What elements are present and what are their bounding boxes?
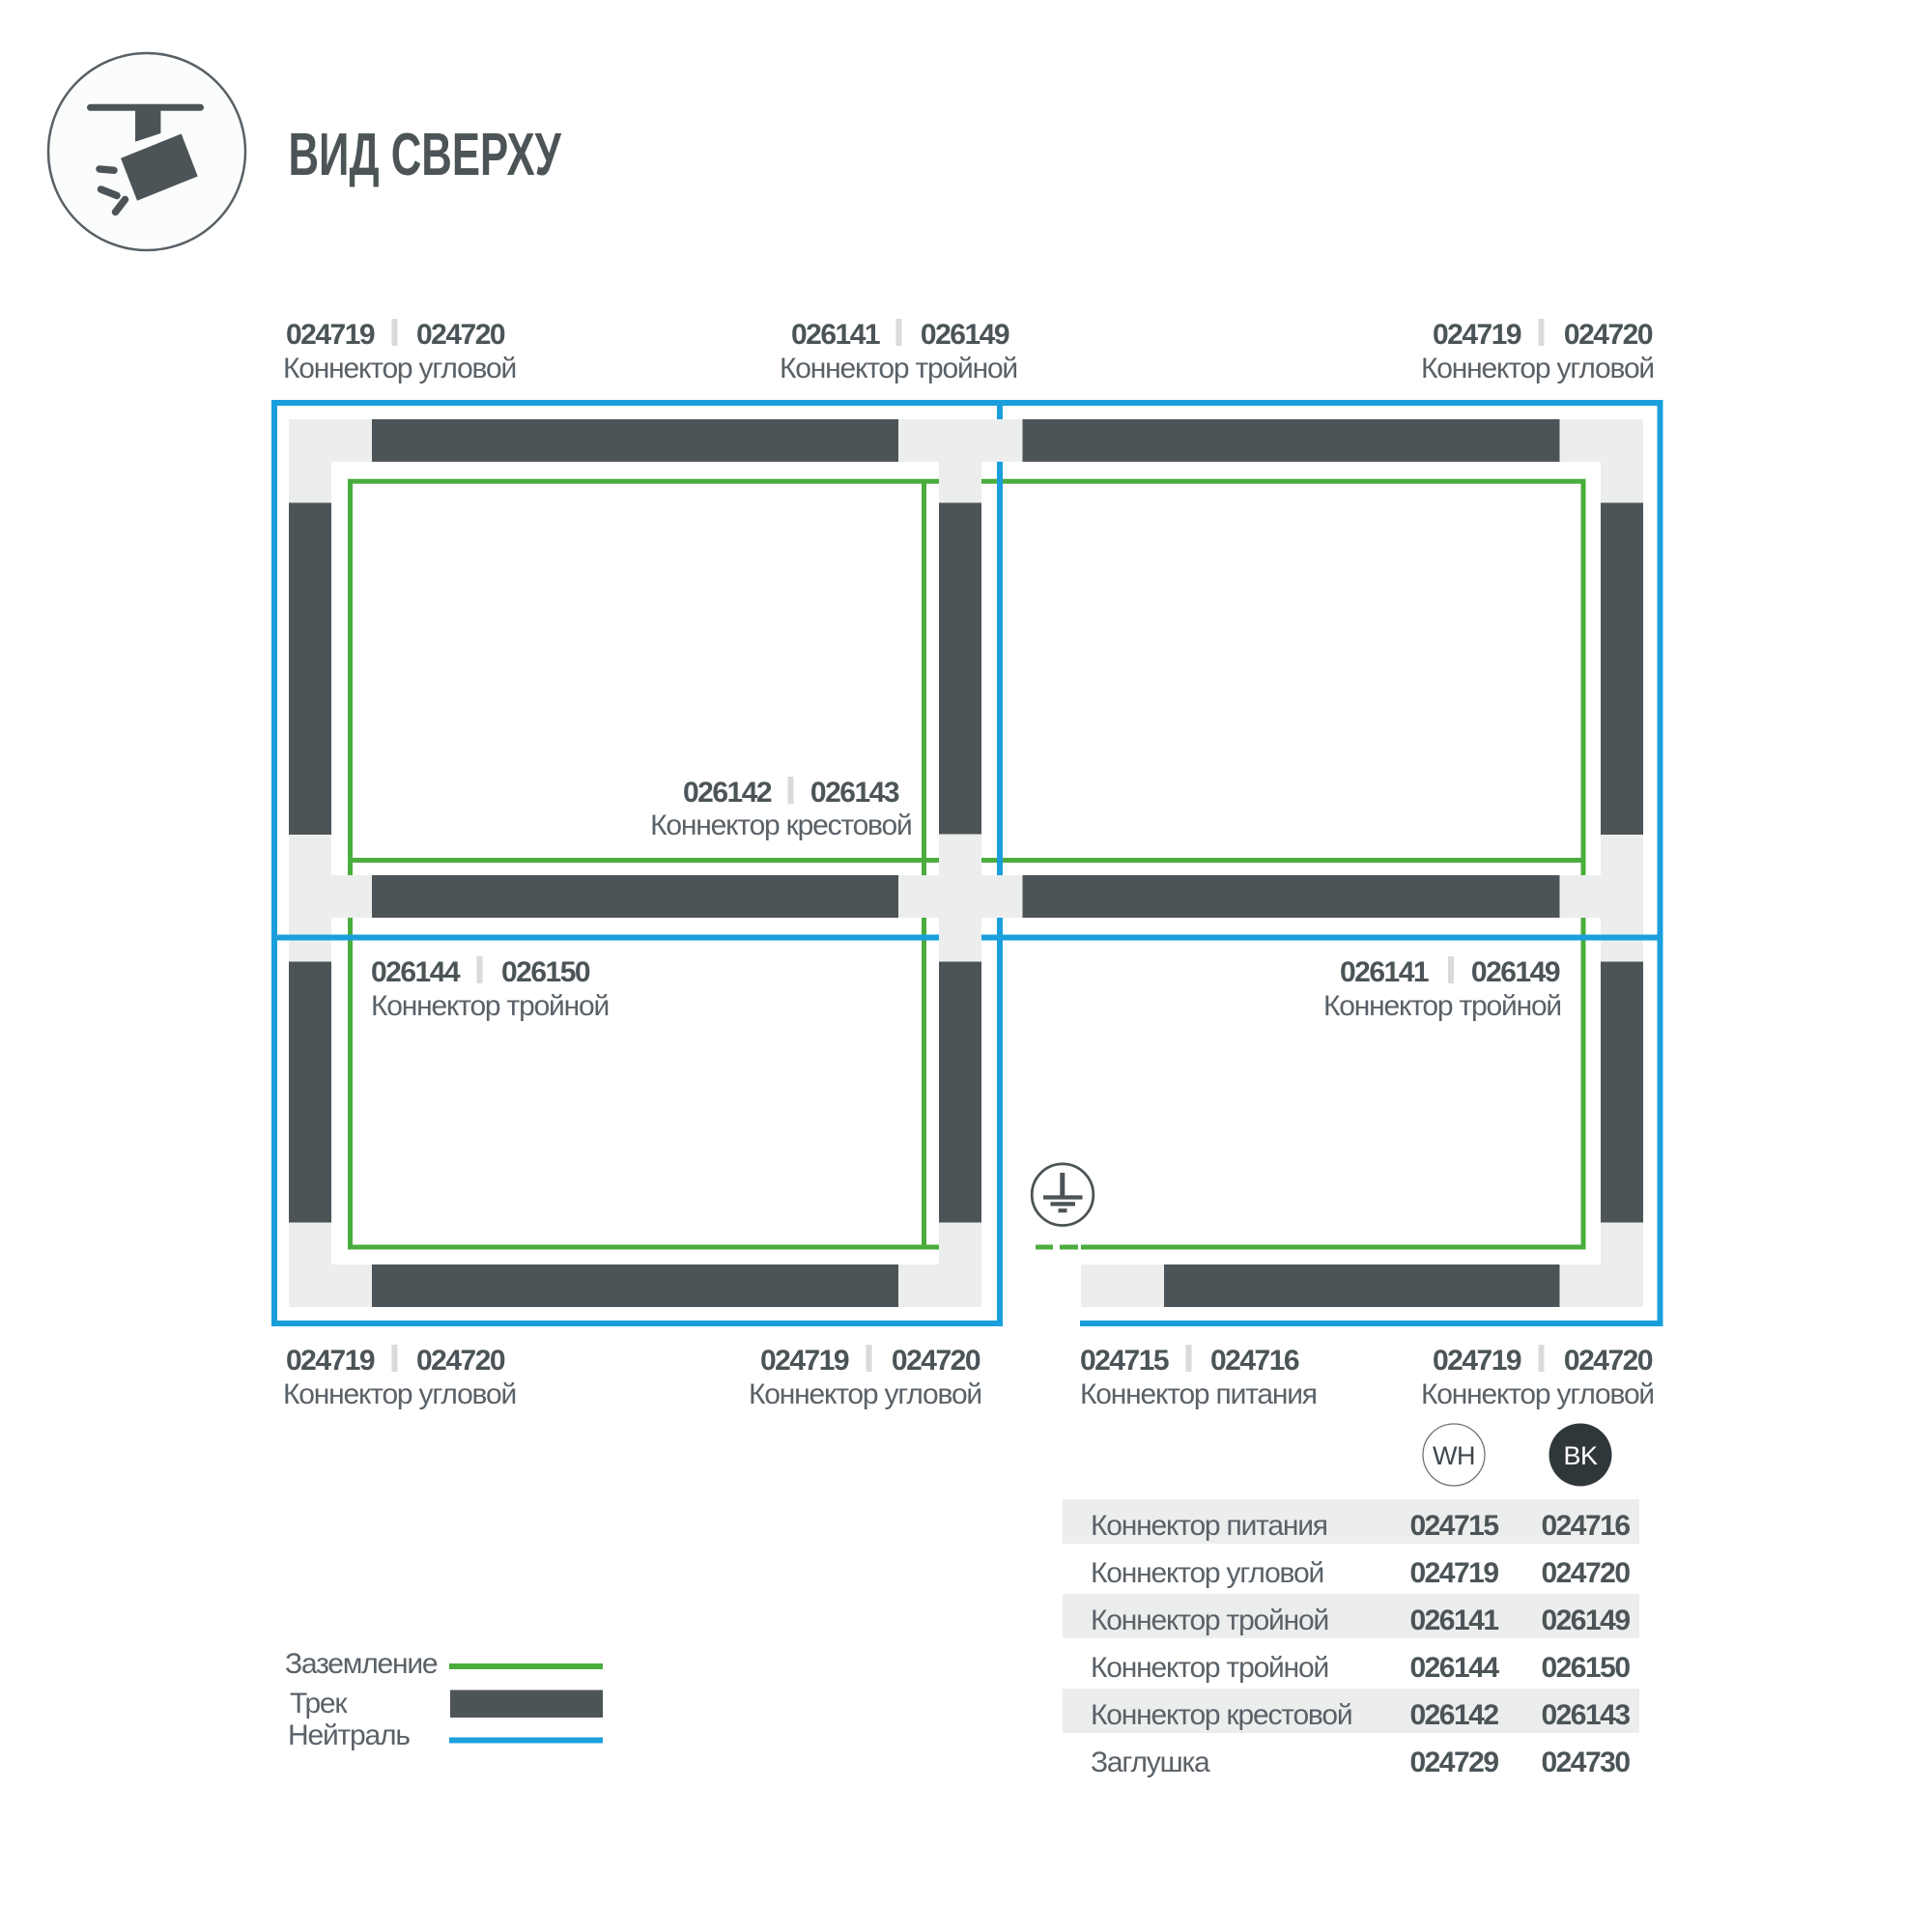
svg-text:Заглушка: Заглушка (1091, 1747, 1210, 1778)
svg-text:026149: 026149 (1541, 1605, 1630, 1636)
svg-text:024715: 024715 (1080, 1345, 1169, 1377)
svg-text:024720: 024720 (892, 1345, 980, 1377)
svg-text:Коннектор тройной: Коннектор тройной (1323, 990, 1561, 1022)
svg-text:Коннектор тройной: Коннектор тройной (371, 990, 609, 1022)
svg-text:026144: 026144 (371, 956, 461, 988)
svg-text:Коннектор тройной: Коннектор тройной (1091, 1652, 1328, 1684)
svg-text:Коннектор питания: Коннектор питания (1080, 1378, 1317, 1410)
svg-text:Коннектор питания: Коннектор питания (1091, 1510, 1327, 1542)
svg-text:026143: 026143 (810, 777, 899, 809)
svg-text:024719: 024719 (286, 1345, 375, 1377)
svg-text:026149: 026149 (1471, 956, 1560, 988)
svg-text:024720: 024720 (416, 1345, 505, 1377)
svg-text:024729: 024729 (1409, 1747, 1498, 1778)
svg-text:Нейтраль: Нейтраль (288, 1719, 410, 1751)
svg-text:Коннектор крестовой: Коннектор крестовой (1091, 1699, 1351, 1731)
svg-text:026141: 026141 (791, 319, 880, 351)
svg-text:WH: WH (1433, 1441, 1475, 1470)
svg-text:Коннектор угловой: Коннектор угловой (283, 353, 516, 384)
svg-text:Трек: Трек (290, 1688, 348, 1719)
svg-text:Коннектор угловой: Коннектор угловой (1421, 353, 1654, 384)
svg-text:024720: 024720 (1564, 1345, 1653, 1377)
svg-text:024715: 024715 (1409, 1510, 1498, 1542)
svg-text:Коннектор угловой: Коннектор угловой (283, 1378, 516, 1410)
svg-text:026142: 026142 (1409, 1699, 1498, 1731)
svg-text:Коннектор угловой: Коннектор угловой (1421, 1378, 1654, 1410)
svg-text:026150: 026150 (1541, 1652, 1630, 1684)
svg-text:ВИД СВЕРХУ: ВИД СВЕРХУ (289, 122, 562, 188)
svg-text:026142: 026142 (683, 777, 772, 809)
svg-text:024716: 024716 (1541, 1510, 1630, 1542)
svg-text:Коннектор угловой: Коннектор угловой (749, 1378, 981, 1410)
svg-text:024719: 024719 (1433, 1345, 1521, 1377)
svg-text:026150: 026150 (501, 956, 590, 988)
svg-text:Коннектор крестовой: Коннектор крестовой (650, 810, 911, 841)
svg-text:024719: 024719 (760, 1345, 849, 1377)
svg-text:026141: 026141 (1340, 956, 1429, 988)
svg-text:024716: 024716 (1210, 1345, 1299, 1377)
svg-text:024719: 024719 (1409, 1557, 1498, 1589)
svg-text:024720: 024720 (1564, 319, 1653, 351)
svg-text:026143: 026143 (1541, 1699, 1630, 1731)
svg-text:Коннектор тройной: Коннектор тройной (780, 353, 1017, 384)
svg-text:026144: 026144 (1409, 1652, 1499, 1684)
svg-text:024730: 024730 (1541, 1747, 1630, 1778)
svg-text:026149: 026149 (921, 319, 1009, 351)
svg-text:024720: 024720 (1541, 1557, 1630, 1589)
svg-text:026141: 026141 (1409, 1605, 1498, 1636)
svg-text:024719: 024719 (1433, 319, 1521, 351)
svg-text:Коннектор тройной: Коннектор тройной (1091, 1605, 1328, 1636)
svg-text:024719: 024719 (286, 319, 375, 351)
svg-text:BK: BK (1563, 1441, 1598, 1470)
svg-text:Коннектор угловой: Коннектор угловой (1091, 1557, 1323, 1589)
svg-text:Заземление: Заземление (285, 1648, 438, 1680)
svg-text:024720: 024720 (416, 319, 505, 351)
